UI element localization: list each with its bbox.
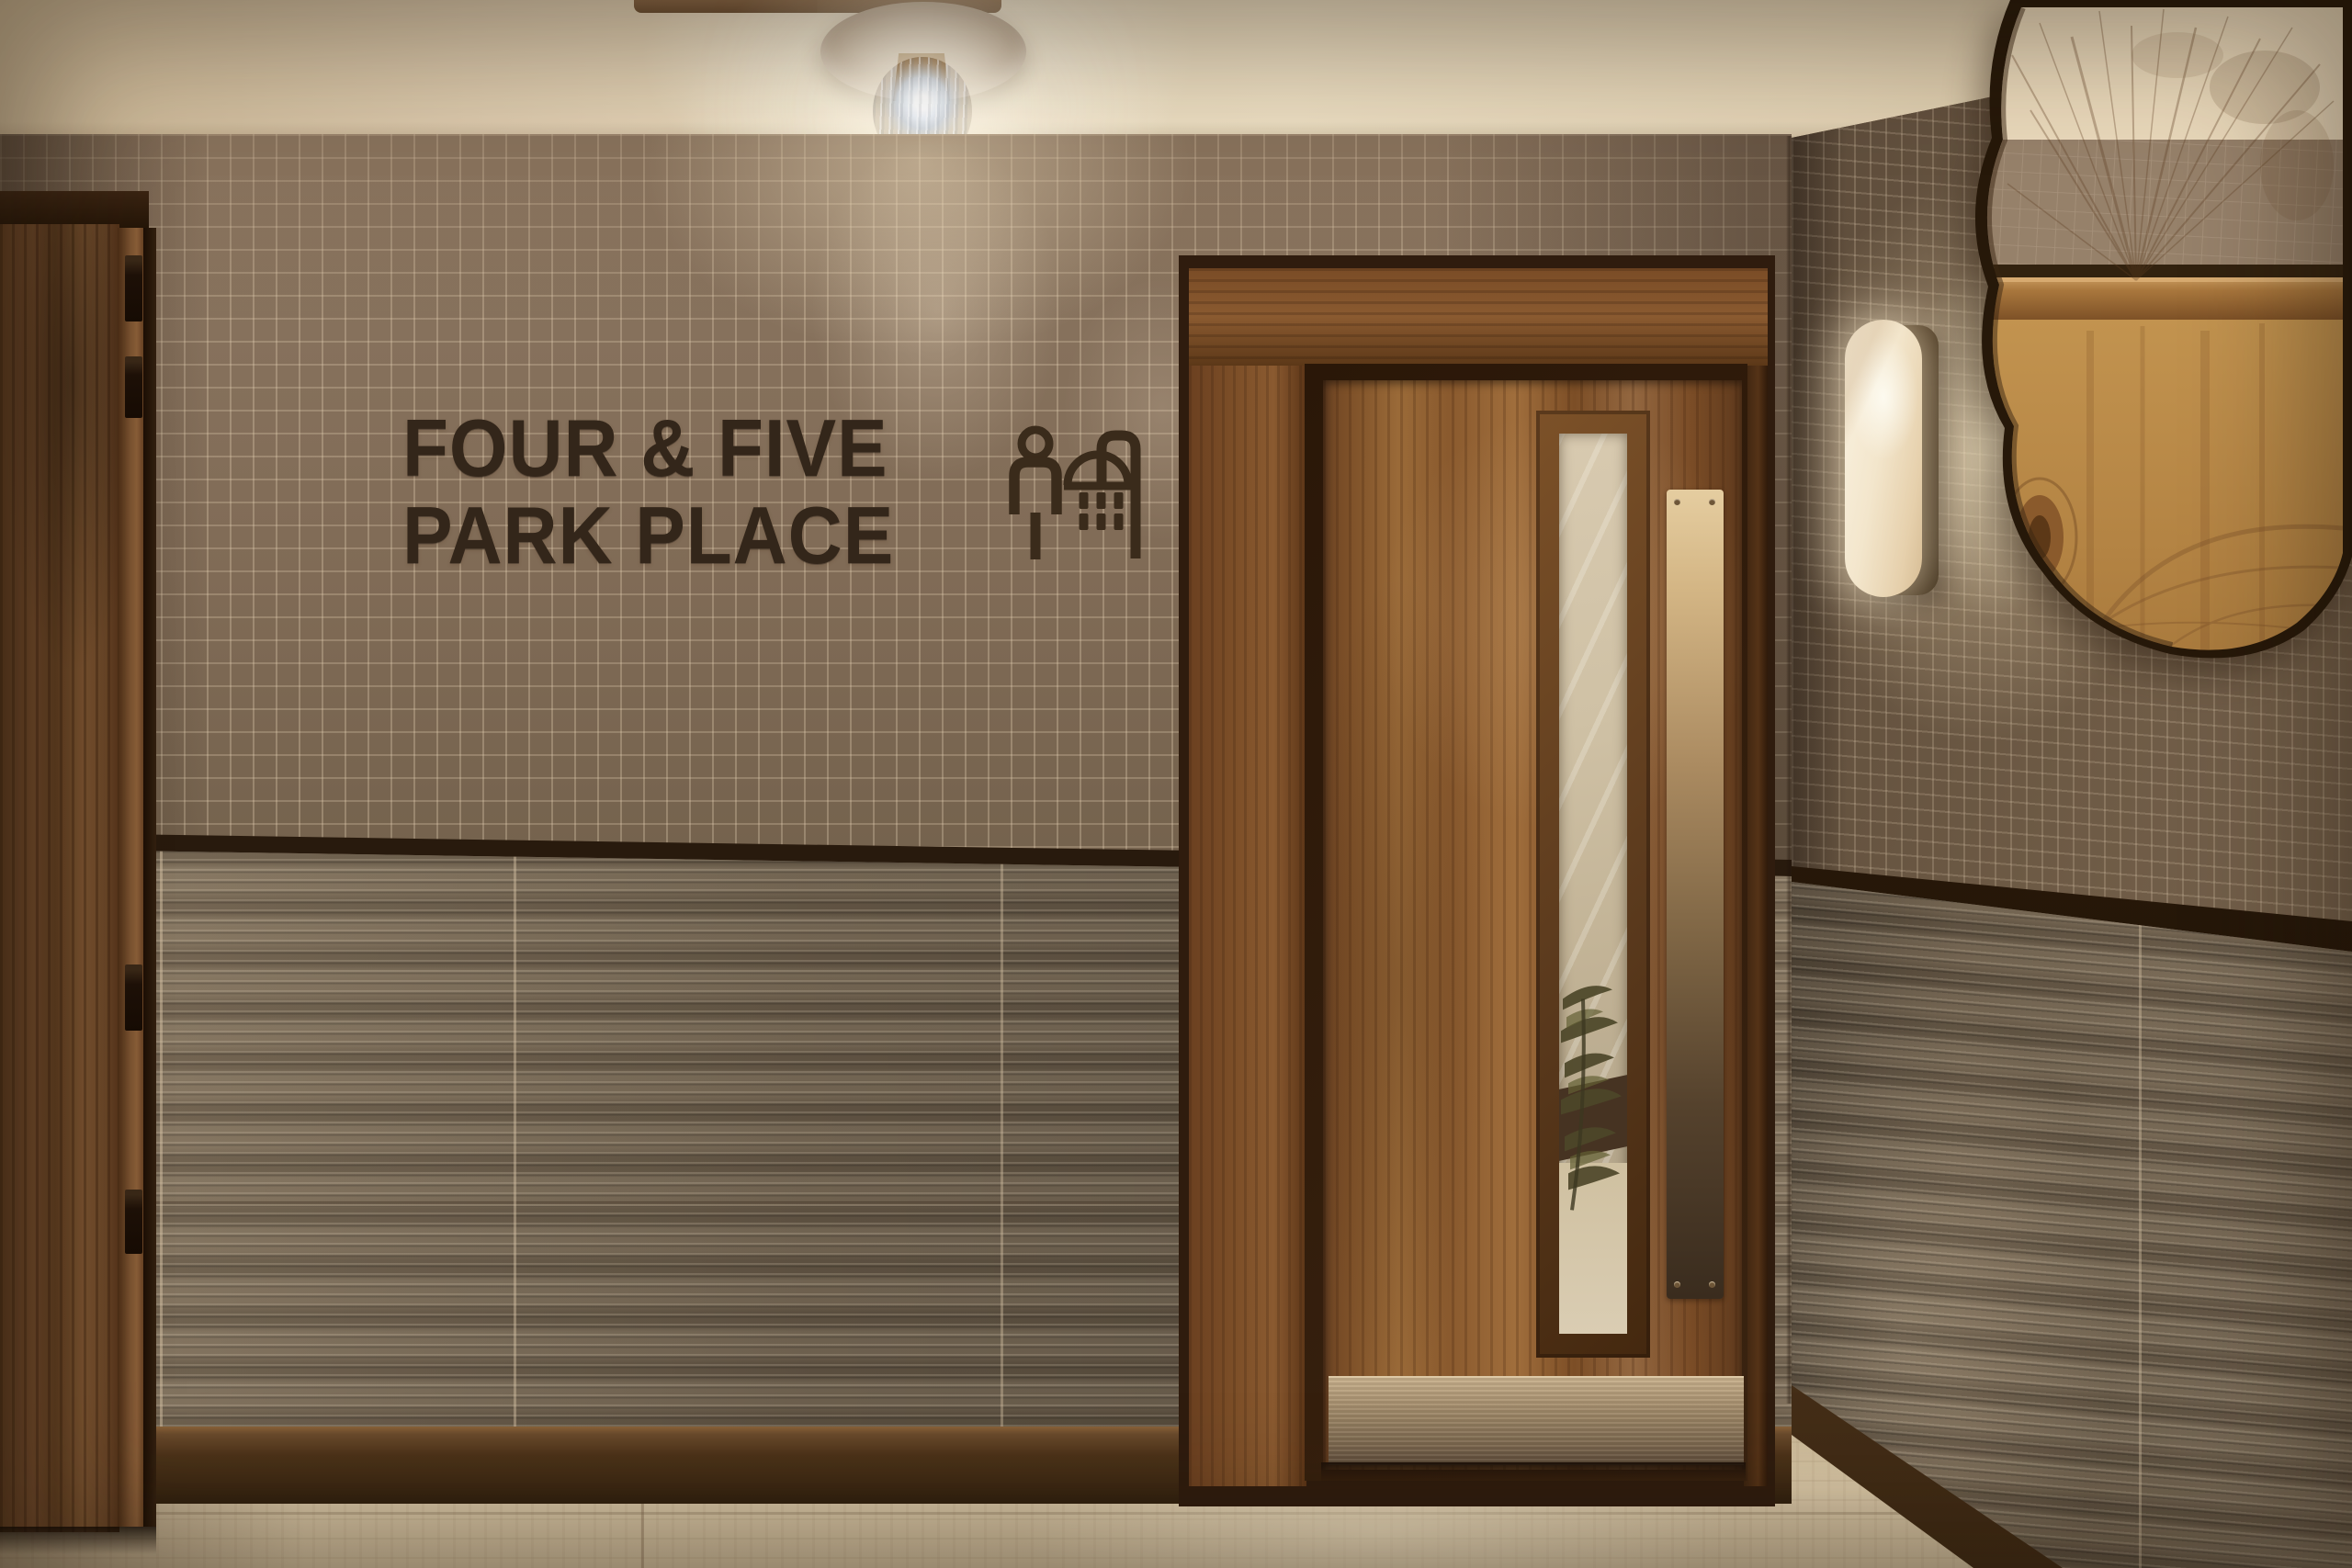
live-edge-mirror	[1902, 0, 2352, 790]
sign-line-2: PARK PLACE	[402, 491, 894, 579]
kick-plate	[1329, 1376, 1744, 1465]
door-hinge	[125, 255, 142, 321]
left-door-jamb	[118, 228, 145, 1527]
door-jamb-left	[1189, 268, 1306, 1486]
vision-panel-glass	[1559, 434, 1627, 1334]
person-icon	[1014, 430, 1057, 559]
door-header	[1189, 268, 1768, 366]
left-door-gap	[143, 228, 156, 1527]
wall-corner	[1786, 136, 1792, 1404]
baseboard	[0, 1427, 1185, 1504]
hallway-photo: FOUR & FIVE PARK PLACE	[0, 0, 2352, 1568]
door-hinge	[125, 1190, 142, 1254]
push-plate	[1667, 490, 1724, 1299]
sign-line-1: FOUR & FIVE	[402, 404, 894, 491]
door-shadow	[0, 1527, 156, 1554]
left-door-leaf	[0, 224, 119, 1532]
door-hinge	[125, 356, 142, 418]
door-shadow	[1321, 1462, 1746, 1483]
wall-sign: FOUR & FIVE PARK PLACE	[402, 404, 894, 579]
plant-through-glass	[1559, 829, 1627, 1334]
door-hinge	[125, 964, 142, 1031]
shower-icon	[1064, 435, 1136, 558]
shower-sign-icons	[1006, 418, 1153, 570]
